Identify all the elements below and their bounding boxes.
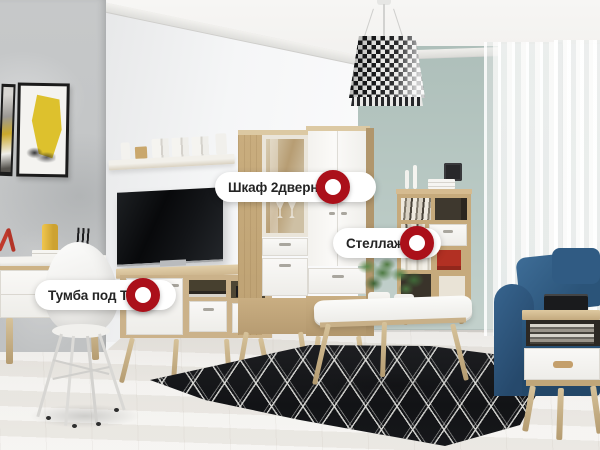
cabinet-base-oak [238,298,308,334]
coffee-table [308,250,480,390]
books-stack [530,324,594,344]
desk-leg [6,318,13,364]
table-leg [380,322,387,377]
decor-book-stack [428,179,455,189]
pendant-lamp [340,0,440,110]
side-table-leg [522,385,536,431]
poster-art-ink [25,142,55,165]
cabinet-lower-door [262,258,308,296]
side-table-shelf [526,320,600,346]
poster-frame-large [16,83,70,178]
speaker [544,294,588,311]
scissors-red [6,228,16,252]
chair-leg-wire [64,336,74,426]
hotspot-label-text: Тумба под ТВ [48,288,138,303]
lamp-shade-light [349,36,425,98]
plant-foliage [386,262,426,298]
table-leg [312,323,331,385]
chair-foot [72,424,77,428]
hotspot-marker-icon[interactable] [126,278,160,312]
chair-leg-wire [86,336,98,424]
chair-foot [96,422,101,426]
room-photo: Шкаф 2дверный Стеллаж Тумба под ТВ [0,0,600,450]
table-leg [450,323,469,380]
tv-screen [117,187,223,267]
shelf-decor-canister [215,133,227,155]
hotspot-label-wardrobe[interactable]: Шкаф 2дверный [215,172,376,202]
chair-cross-wire [52,366,109,380]
side-table-leg [590,386,600,434]
drawer-wood-handle [553,361,573,368]
cabinet-drawer [262,238,308,256]
tv-stand-open-shelf-left [189,280,226,297]
lamp-cord [383,4,385,38]
chair-foot [46,416,51,420]
chair-foot [114,408,119,412]
cubby-books [401,198,431,220]
cubby-dark [435,198,467,220]
wall-shelf [107,123,239,178]
chair [26,238,126,428]
lamp-wire-left [363,9,374,40]
sofa-backrest [552,248,600,284]
side-table-drawer [524,348,600,380]
candlestick [413,165,417,189]
side-table [518,290,600,450]
side-table-base [526,380,600,386]
hotspot-label-text: Стеллаж [346,236,403,251]
chair-leg-wire [36,334,62,417]
side-table-leg [556,388,564,440]
poster-art [1,87,14,172]
candlestick [405,170,409,189]
side-table-top [522,310,600,320]
shelf-decor-cube [135,146,148,159]
lamp-wire-right [393,9,404,40]
tv-stand-drawer-left [189,301,227,332]
hotspot-marker-icon[interactable] [400,226,434,260]
lamp-fringe [351,97,423,106]
shelf-decor-jar [121,142,131,159]
hotspot-marker-icon[interactable] [316,170,350,204]
